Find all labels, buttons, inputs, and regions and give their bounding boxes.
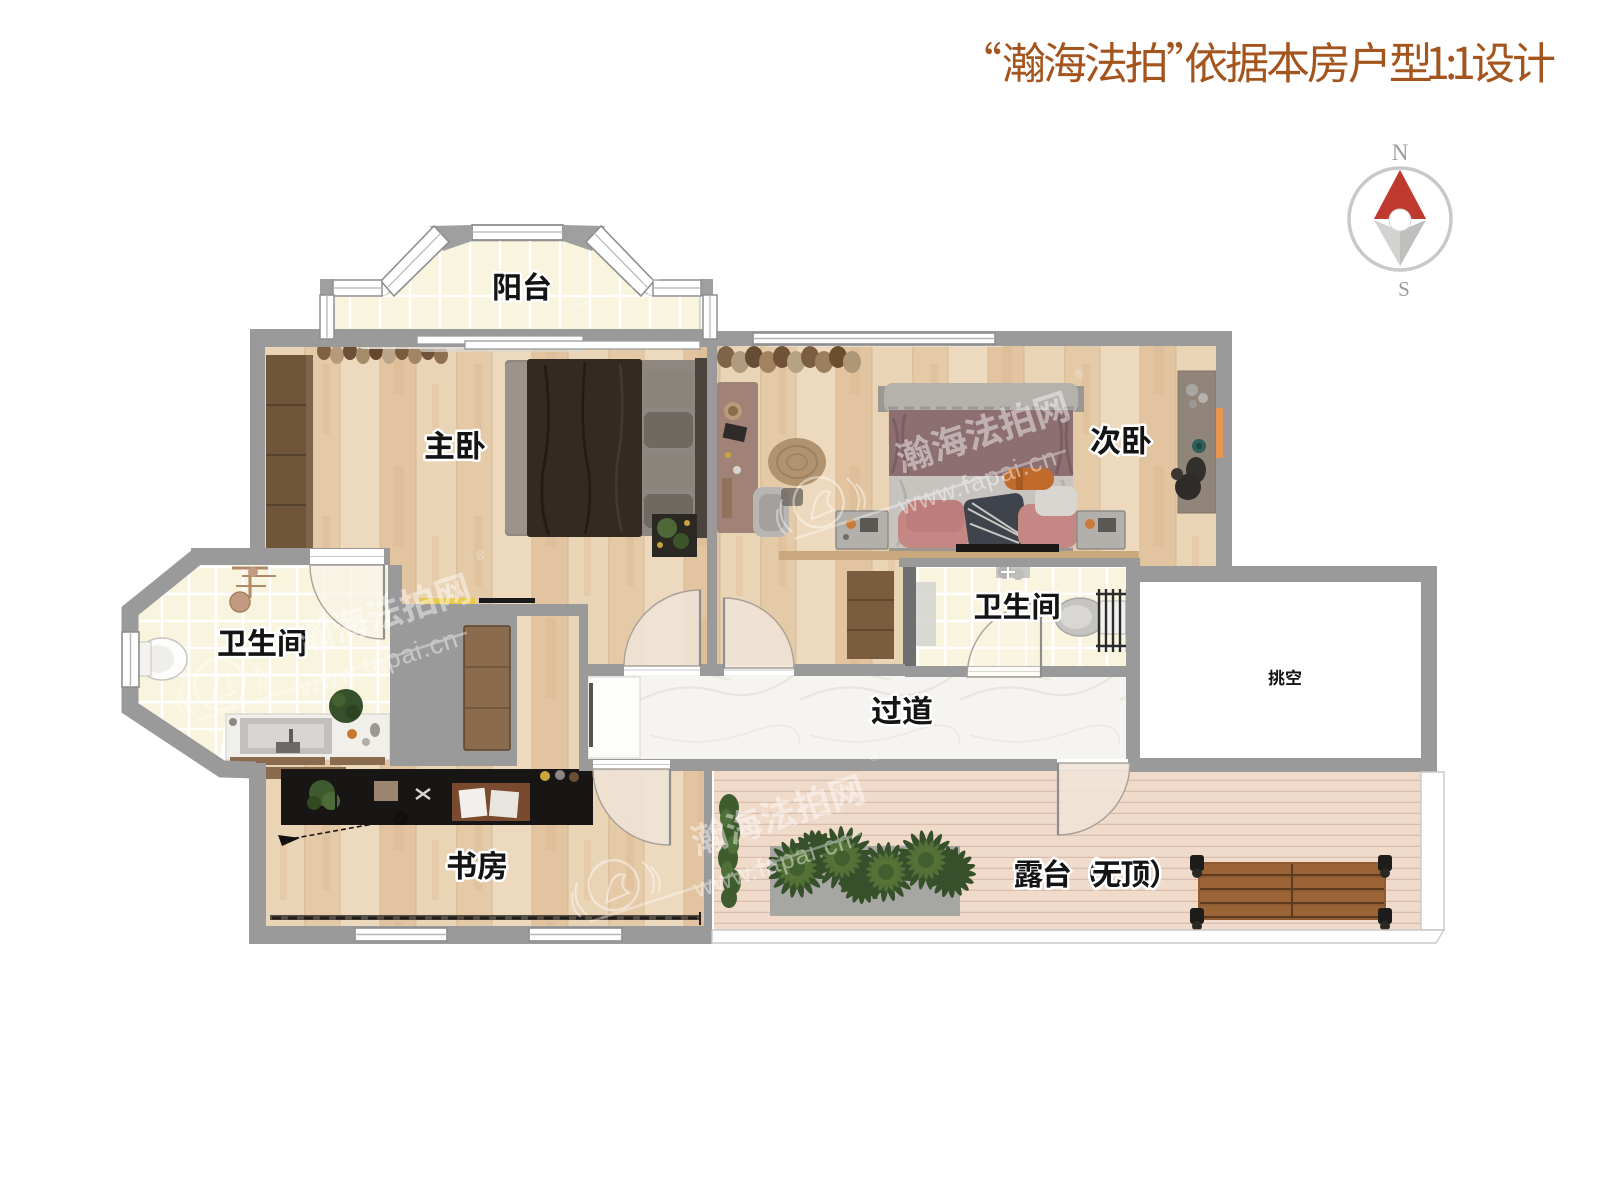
svg-text:N: N — [1392, 140, 1409, 165]
svg-text:S: S — [1398, 277, 1410, 301]
